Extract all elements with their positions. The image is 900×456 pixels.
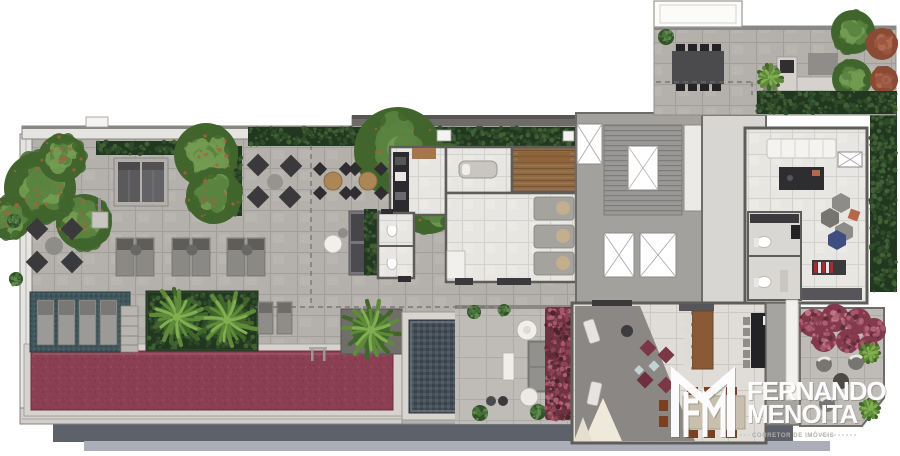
svg-text:CORRETOR DE IMÓVEIS: CORRETOR DE IMÓVEIS [752, 431, 834, 439]
svg-text:MENOITA: MENOITA [747, 399, 859, 429]
